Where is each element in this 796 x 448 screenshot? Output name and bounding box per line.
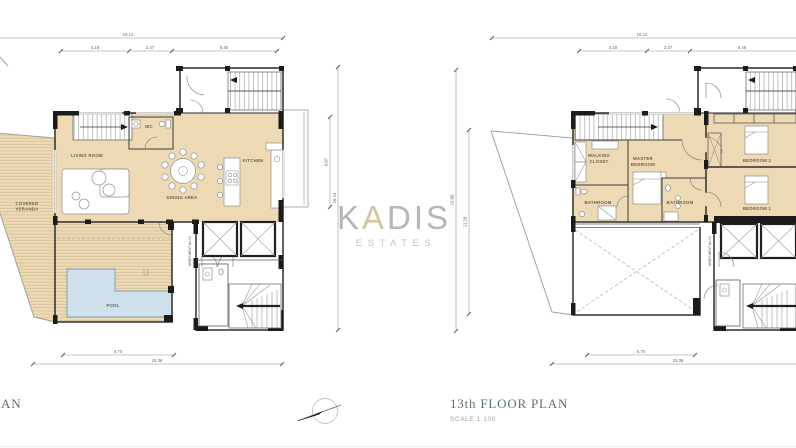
- dim-seg-c: 6.45: [738, 45, 747, 50]
- veranda-deck-hatch: [0, 131, 55, 322]
- wc-toilet: [159, 122, 165, 127]
- left-floor-plan: APARTMENT No.12 LIVING ROOM DINING AREA …: [0, 32, 341, 424]
- covered-veranda-label-1: COVERED: [16, 201, 39, 206]
- bedroom2-label: BEDROOM 2: [743, 158, 772, 163]
- master-bedroom-label-1: MASTER: [633, 156, 653, 161]
- dim-seg-b: 2.47: [146, 45, 155, 50]
- master-bed-group: [633, 172, 666, 204]
- dim-seg-a: 4.18: [91, 45, 100, 50]
- master-bedroom-label-2: BEDROOM: [631, 162, 655, 167]
- covered-veranda-label-2: VERANDA: [16, 207, 39, 212]
- unit-entry-door-arc: [666, 99, 680, 113]
- apartment-label: APARTMENT No.12: [188, 236, 192, 266]
- dim-seg-b: 2.47: [664, 45, 673, 50]
- elevator-core: [704, 224, 796, 328]
- veranda-roof-outline: [491, 131, 573, 315]
- dim-bottom-inner: 6.70: [114, 349, 123, 354]
- brand-watermark: KADIS ESTATES: [337, 199, 451, 249]
- dim-overall-width: 19.12: [123, 32, 134, 37]
- floor-plan-sheet: APARTMENT No.12 LIVING ROOM DINING AREA …: [0, 0, 796, 448]
- brand-name: KADIS: [337, 199, 451, 236]
- bathroom-left-label: BATHROOM: [585, 200, 612, 205]
- right-floor-plan: APARTMENT No.12 WALKING CLOSET MASTER BE…: [450, 32, 796, 423]
- dim-side-inner: 6.07: [324, 157, 329, 166]
- elevator-core: [196, 222, 283, 328]
- right-caption-scale: SCALE 1:100: [450, 416, 496, 423]
- wc-basin-bowl: [134, 122, 138, 126]
- wc-label: WC: [145, 124, 153, 129]
- living-room-label: LIVING ROOM: [71, 153, 103, 158]
- dim-side-inner: 11.28: [463, 216, 468, 227]
- bathroom-center-label: BATHROOM: [667, 200, 694, 205]
- left-caption-fragment: AN: [1, 396, 21, 411]
- wc-toilet-tank: [166, 120, 171, 128]
- dim-seg-c: 6.45: [220, 45, 229, 50]
- dim-bottom-total: 15.36: [673, 358, 684, 363]
- kitchen-label: KITCHEN: [243, 158, 264, 163]
- floor-plan-canvas: APARTMENT No.12 LIVING ROOM DINING AREA …: [0, 0, 796, 448]
- void-room: [573, 224, 700, 313]
- bedroom1-group: [745, 176, 768, 204]
- apartment-label: APARTMENT No.12: [708, 236, 712, 266]
- bedroom1-label: BEDROOM 1: [743, 206, 772, 211]
- sofa-group: [62, 169, 129, 214]
- dim-bottom-inner: 6.70: [637, 349, 646, 354]
- dim-overall-width: 19.12: [637, 32, 648, 37]
- walking-closet-label-2: CLOSET: [590, 159, 609, 164]
- dim-seg-a: 4.18: [609, 45, 618, 50]
- brand-subtitle: ESTATES: [356, 238, 436, 249]
- site-boundary-tick: [0, 57, 8, 66]
- dining-area-label: DINING AREA: [167, 195, 198, 200]
- dim-bottom-total: 15.36: [152, 358, 163, 363]
- pool-label: POOL: [106, 303, 119, 308]
- north-compass: [297, 399, 341, 424]
- walking-closet-label-1: WALKING: [588, 153, 610, 158]
- right-caption: 13th FLOOR PLAN: [450, 396, 568, 411]
